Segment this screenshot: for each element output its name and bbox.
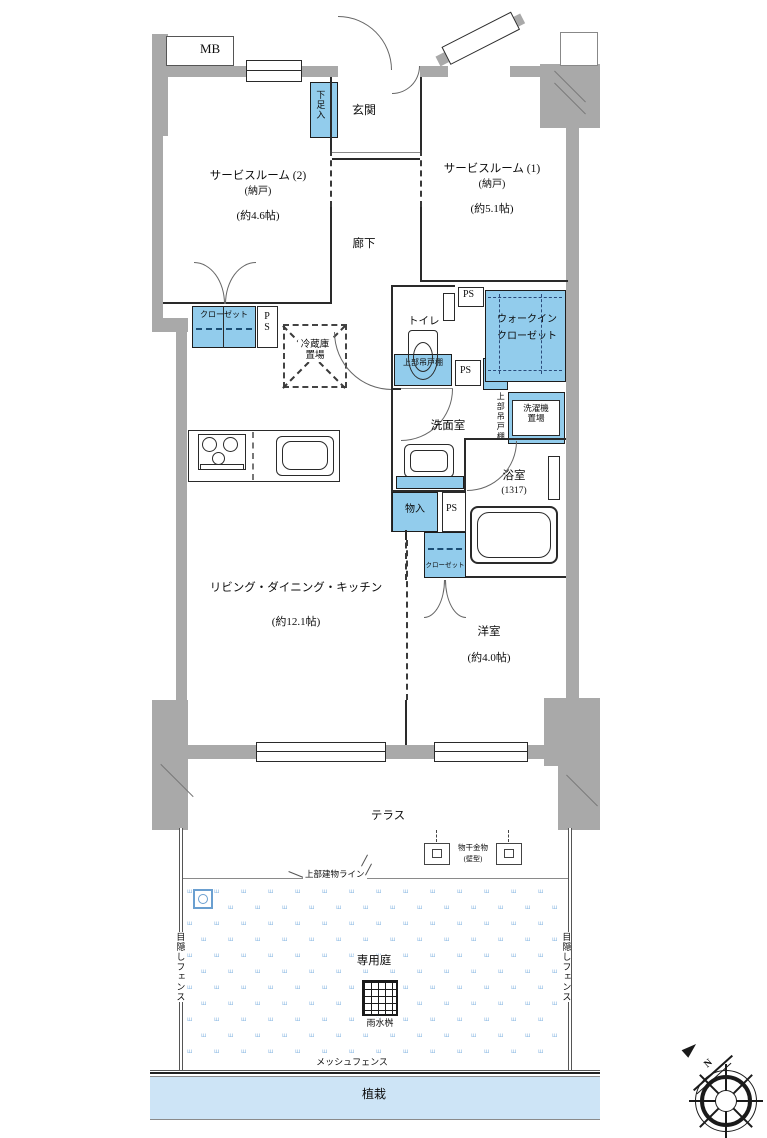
garden-grass-mark: ш — [295, 952, 301, 959]
garden-grass-mark: ш — [349, 920, 355, 927]
toilet-label: トイレ — [408, 316, 440, 328]
garden-grass-mark: ш — [484, 1048, 490, 1055]
entry-step-line2 — [332, 158, 420, 160]
rain-basin-label: 雨水桝 — [364, 1018, 395, 1028]
garden-grass-mark: ш — [484, 952, 490, 959]
garden-grass-mark: ш — [444, 968, 450, 975]
garden-grass-mark: ш — [309, 1000, 315, 1007]
garden-grass-mark: ш — [552, 936, 558, 943]
garden-grass-mark: ш — [552, 1032, 558, 1039]
garden-grass-mark: ш — [268, 888, 274, 895]
meter-box-label: MB — [200, 42, 220, 57]
stove-knob-bar — [200, 464, 244, 470]
wic-label-1: ウォークイン — [497, 314, 557, 326]
garden-grass-mark: ш — [201, 1000, 207, 1007]
garden-grass-mark: ш — [309, 968, 315, 975]
garden-grass-mark: ш — [282, 1000, 288, 1007]
garden-grass-mark: ш — [376, 888, 382, 895]
shoe-cabinet-label: 下足入 — [315, 90, 325, 134]
corridor-wall-left-a — [330, 77, 332, 150]
corridor-opening-right — [420, 150, 422, 207]
garden-grass-mark: ш — [511, 952, 517, 959]
garden-grass-mark: ш — [525, 968, 531, 975]
privacy-fence-right-label: 目隠しフェンス — [561, 932, 571, 1002]
garden-grass-mark: ш — [228, 904, 234, 911]
garden-grass-mark: ш — [363, 1032, 369, 1039]
north-label: N — [702, 1057, 715, 1070]
entry-door-arc-small — [392, 66, 420, 94]
closet-b-rail — [428, 548, 462, 550]
drying-hook-stub — [436, 830, 437, 842]
closet-a-rail — [196, 328, 252, 330]
garden-grass-mark: ш — [430, 952, 436, 959]
garden-grass-mark: ш — [525, 936, 531, 943]
garden-grass-mark: ш — [309, 1032, 315, 1039]
window-diagonal — [441, 12, 520, 65]
wall-top-b — [420, 66, 448, 77]
garden-grass-mark: ш — [390, 936, 396, 943]
service1-name: サービスルーム (1) — [444, 163, 540, 176]
wall-bottom-right-lower — [558, 766, 600, 830]
corridor-wall-right-b — [420, 207, 422, 282]
garden-grass-mark: ш — [336, 968, 342, 975]
garden-grass-mark: ш — [282, 936, 288, 943]
garden-grass-mark: ш — [511, 1016, 517, 1023]
drying-fixture-sub-label: (壁型) — [464, 855, 483, 863]
washbasin-inner — [410, 450, 448, 472]
garden-grass-mark: ш — [322, 984, 328, 991]
garden-grass-mark: ш — [201, 936, 207, 943]
garden-grass-mark: ш — [471, 1000, 477, 1007]
floor-plan: MB 下足入 玄関 サービスルーム (2) (納戸) (約4.6帖) クローゼッ… — [0, 0, 767, 1138]
drying-hook-inner — [432, 849, 442, 858]
entrance-label: 玄関 — [352, 104, 376, 118]
garden-grass-mark: ш — [336, 936, 342, 943]
bath-size-label: (1317) — [501, 486, 526, 497]
garden-grass-mark: ш — [187, 1048, 193, 1055]
garden-grass-mark: ш — [403, 920, 409, 927]
storage-label: 物入 — [405, 504, 425, 516]
closet-b-door-left — [424, 580, 445, 618]
garden-grass-mark: ш — [403, 888, 409, 895]
wall-bottom-right-pillar — [544, 698, 600, 766]
garden-grass-mark: ш — [349, 1016, 355, 1023]
ldk-size-label: (約12.1帖) — [272, 616, 321, 629]
garden-grass-mark: ш — [417, 968, 423, 975]
garden-grass-mark: ш — [498, 968, 504, 975]
bath-label: 浴室 — [503, 470, 526, 483]
garden-grass-mark: ш — [255, 1032, 261, 1039]
stove-burner-2 — [223, 437, 238, 452]
garden-grass-mark: ш — [241, 984, 247, 991]
garden-grass-mark: ш — [282, 904, 288, 911]
garden-grass-mark: ш — [363, 936, 369, 943]
garden-grass-mark: ш — [349, 984, 355, 991]
window-top — [246, 60, 302, 82]
garden-grass-mark: ш — [295, 984, 301, 991]
service2-sub: (納戸) — [245, 186, 272, 198]
garden-grass-mark: ш — [430, 1048, 436, 1055]
garden-grass-mark: ш — [322, 1048, 328, 1055]
stove-burner-1 — [202, 437, 217, 452]
bathtub-inner — [477, 512, 551, 558]
corridor-wall-left-b — [330, 207, 332, 304]
washroom-door-leaf — [401, 388, 453, 389]
garden-grass-mark: ш — [255, 1000, 261, 1007]
garden-grass-mark: ш — [322, 888, 328, 895]
washbasin-counter — [396, 476, 464, 489]
building-line-leader — [288, 871, 303, 878]
garden-grass-mark: ш — [538, 1048, 544, 1055]
garden-grass-mark: ш — [322, 952, 328, 959]
garden-grass-mark: ш — [430, 984, 436, 991]
garden-grass-mark: ш — [403, 952, 409, 959]
corridor-wall-right-a — [420, 77, 422, 150]
garden-grass-mark: ш — [336, 1032, 342, 1039]
garden-grass-mark: ш — [430, 888, 436, 895]
garden-grass-mark: ш — [417, 904, 423, 911]
garden-grass-mark: ш — [417, 936, 423, 943]
wall-left-lower — [176, 330, 187, 758]
garden-grass-mark: ш — [187, 888, 193, 895]
toilet-tank — [443, 293, 455, 321]
mesh-fence-label: メッシュフェンス — [313, 1057, 391, 1067]
window-top-line — [246, 70, 302, 71]
garden-grass-mark: ш — [552, 1000, 558, 1007]
laundry-label: 洗濯機置場 — [521, 404, 551, 424]
garden-grass-mark: ш — [241, 1016, 247, 1023]
garden-grass-mark: ш — [538, 920, 544, 927]
drying-fixture-label: 物干金物 — [458, 844, 488, 853]
garden-grass-mark: ш — [187, 952, 193, 959]
garden-grass-mark: ш — [525, 1000, 531, 1007]
garden-grass-mark: ш — [187, 984, 193, 991]
corridor-label: 廊下 — [353, 238, 376, 251]
garden-grass-mark: ш — [201, 1032, 207, 1039]
planting-label: 植栽 — [362, 1088, 386, 1102]
garden-grass-mark: ш — [295, 920, 301, 927]
garden-grass-mark: ш — [228, 968, 234, 975]
closet-b — [424, 532, 466, 578]
garden-grass-mark: ш — [268, 1016, 274, 1023]
garden-grass-mark: ш — [187, 920, 193, 927]
garden-grass-mark: ш — [552, 968, 558, 975]
garden-grass-mark: ш — [511, 984, 517, 991]
garden-grass-mark: ш — [498, 904, 504, 911]
closet-door-arc-left — [194, 262, 225, 304]
bath-shelf — [548, 456, 560, 500]
garden-grass-mark: ш — [268, 920, 274, 927]
garden-grass-mark: ш — [471, 968, 477, 975]
garden-grass-mark: ш — [403, 1048, 409, 1055]
garden-grass-mark: ш — [322, 1016, 328, 1023]
garden-grass-mark: ш — [214, 888, 220, 895]
garden-grass-mark: ш — [390, 1032, 396, 1039]
garden-grass-mark: ш — [228, 936, 234, 943]
closet-b-label: クローゼット — [426, 562, 465, 569]
closet-b-door-right — [445, 580, 466, 618]
garden-grass-mark: ш — [309, 936, 315, 943]
garden-grass-mark: ш — [471, 936, 477, 943]
garden-grass-mark: ш — [295, 1048, 301, 1055]
garden-grass-mark: ш — [417, 1032, 423, 1039]
garden-grass-mark: ш — [471, 904, 477, 911]
garden-grass-mark: ш — [214, 1048, 220, 1055]
window-ldk — [256, 742, 386, 762]
closet-a-label: クローゼット — [200, 310, 248, 319]
garden-grass-mark: ш — [241, 952, 247, 959]
kitchen-sink-inner — [282, 441, 328, 470]
garden-grass-mark: ш — [430, 920, 436, 927]
bath-top-wall — [464, 438, 566, 440]
garden-grass-mark: ш — [511, 920, 517, 927]
water-tap-inner — [198, 894, 208, 904]
garden-grass-mark: ш — [336, 904, 342, 911]
wic-label-2: クローゼット — [497, 331, 557, 343]
washroom-label: 洗面室 — [431, 420, 466, 433]
garden-grass-mark: ш — [552, 904, 558, 911]
garden-grass-mark: ш — [390, 904, 396, 911]
garden-grass-mark: ш — [498, 1032, 504, 1039]
garden-grass-mark: ш — [538, 888, 544, 895]
ps-a-label: PS — [261, 311, 273, 333]
wall-top-right-pillar — [540, 64, 600, 128]
garden-grass-mark: ш — [457, 1048, 463, 1055]
drying-hook-stub — [508, 830, 509, 842]
window-western-line — [434, 751, 528, 752]
garden-grass-mark: ш — [457, 1016, 463, 1023]
garden-grass-mark: ш — [282, 1032, 288, 1039]
pillar-notch — [560, 32, 598, 66]
garden-grass-mark: ш — [444, 936, 450, 943]
garden-grass-mark: ш — [295, 1016, 301, 1023]
garden-grass-mark: ш — [457, 920, 463, 927]
toilet-bowl-inner — [413, 342, 433, 372]
ldk-door-leaf — [391, 332, 392, 390]
garden-grass-mark: ш — [214, 920, 220, 927]
garden-grass-mark: ш — [282, 968, 288, 975]
garden-grass-mark: ш — [511, 1048, 517, 1055]
wall-right — [566, 128, 579, 710]
garden-grass-mark: ш — [403, 984, 409, 991]
wall-left-upper — [152, 66, 163, 318]
garden-grass-mark: ш — [376, 1048, 382, 1055]
garden-grass-mark: ш — [484, 1016, 490, 1023]
garden-grass-mark: ш — [363, 904, 369, 911]
garden-grass-mark: ш — [538, 984, 544, 991]
garden-grass-mark: ш — [538, 1016, 544, 1023]
garden-grass-mark: ш — [241, 1048, 247, 1055]
garden-grass-mark: ш — [444, 1032, 450, 1039]
building-line — [183, 878, 568, 879]
building-line-label: 上部建物ライン — [303, 870, 367, 880]
privacy-fence-left-label: 目隠しフェンス — [175, 932, 185, 1002]
break-mark — [361, 855, 368, 867]
counter-divider-dash — [252, 432, 254, 480]
service2-size: (約4.6帖) — [236, 210, 279, 223]
ldk-label: リビング・ダイニング・キッチン — [210, 582, 383, 595]
entry-door-arc — [338, 16, 392, 70]
garden-grass-mark: ш — [322, 920, 328, 927]
garden-grass-mark: ш — [241, 920, 247, 927]
closet-a-divider — [223, 306, 224, 348]
garden-grass-mark: ш — [228, 1032, 234, 1039]
garden-grass-mark: ш — [214, 1016, 220, 1023]
western-label: 洋室 — [478, 626, 501, 639]
north-arrowhead — [682, 1040, 700, 1057]
washroom-top-wall — [391, 388, 401, 390]
garden-grass-mark: ш — [187, 1016, 193, 1023]
private-garden-label: 専用庭 — [354, 955, 395, 968]
upper-cabinet-b-label: 上部吊戸棚 — [496, 392, 505, 442]
garden-grass-mark: ш — [457, 952, 463, 959]
garden-texture: шшшшшшшшшшшшшшшшшшшшшшшшшшшшшшшшшшшшшшшш… — [183, 884, 568, 1068]
western-size-label: (約4.0帖) — [467, 652, 510, 665]
service1-bottom-wall — [420, 280, 568, 282]
garden-grass-mark: ш — [268, 984, 274, 991]
rain-basin-icon — [362, 980, 398, 1016]
garden-grass-mark: ш — [214, 984, 220, 991]
terrace-label: テラス — [371, 810, 405, 823]
garden-grass-mark: ш — [525, 904, 531, 911]
garden-grass-mark: ш — [498, 936, 504, 943]
service1-sub: (納戸) — [479, 179, 506, 191]
window-western — [434, 742, 528, 762]
garden-grass-mark: ш — [268, 1048, 274, 1055]
partition-sliding — [406, 540, 408, 700]
garden-grass-mark: ш — [457, 984, 463, 991]
garden-grass-mark: ш — [336, 1000, 342, 1007]
ps-d-label: PS — [446, 503, 457, 515]
garden-grass-mark: ш — [484, 888, 490, 895]
garden-grass-mark: ш — [201, 968, 207, 975]
garden-grass-mark: ш — [228, 1000, 234, 1007]
compass-hub — [715, 1090, 737, 1112]
partition-solid-bottom — [405, 700, 407, 745]
garden-grass-mark: ш — [484, 984, 490, 991]
garden-grass-mark: ш — [349, 1048, 355, 1055]
garden-grass-mark: ш — [214, 952, 220, 959]
compass: N — [685, 1038, 767, 1136]
ps-b-label: PS — [463, 289, 474, 301]
window-ldk-line — [256, 751, 386, 752]
service1-size: (約5.1帖) — [470, 203, 513, 216]
drying-hook-inner — [504, 849, 514, 858]
garden-grass-mark: ш — [255, 936, 261, 943]
garden-grass-mark: ш — [268, 952, 274, 959]
toilet-top-wall — [391, 285, 455, 287]
garden-grass-mark: ш — [255, 904, 261, 911]
fridge-space-label: 冷蔵庫置場 — [298, 340, 332, 362]
garden-grass-mark: ш — [444, 904, 450, 911]
partition-solid-top — [405, 530, 407, 540]
garden-grass-mark: ш — [403, 1016, 409, 1023]
bath-door-arc — [467, 441, 517, 491]
wic-rail-h2 — [488, 370, 562, 371]
garden-grass-mark: ш — [417, 1000, 423, 1007]
garden-grass-mark: ш — [255, 968, 261, 975]
water-tap-icon — [193, 889, 213, 909]
garden-grass-mark: ш — [295, 888, 301, 895]
garden-grass-mark: ш — [471, 1032, 477, 1039]
bath-bottom-wall — [464, 576, 566, 578]
wall-bottom-left-pillar — [152, 700, 188, 830]
ps-c-label: PS — [460, 365, 471, 377]
garden-grass-mark: ш — [309, 904, 315, 911]
mesh-fence-line — [150, 1070, 600, 1074]
garden-grass-mark: ш — [484, 920, 490, 927]
wall-top-a — [152, 66, 338, 77]
corridor-opening-left — [330, 150, 332, 207]
entry-step-line — [332, 152, 420, 153]
garden-grass-mark: ш — [363, 968, 369, 975]
garden-grass-mark: ш — [511, 888, 517, 895]
wic-rail-h1 — [488, 297, 562, 298]
service2-name: サービスルーム (2) — [210, 170, 306, 183]
garden-grass-mark: ш — [498, 1000, 504, 1007]
garden-grass-mark: ш — [538, 952, 544, 959]
garden-grass-mark: ш — [376, 920, 382, 927]
garden-grass-mark: ш — [430, 1016, 436, 1023]
garden-grass-mark: ш — [349, 888, 355, 895]
closet-door-arc-right — [225, 262, 256, 304]
garden-grass-mark: ш — [390, 968, 396, 975]
garden-grass-mark: ш — [525, 1032, 531, 1039]
garden-grass-mark: ш — [444, 1000, 450, 1007]
garden-grass-mark: ш — [457, 888, 463, 895]
garden-grass-mark: ш — [241, 888, 247, 895]
